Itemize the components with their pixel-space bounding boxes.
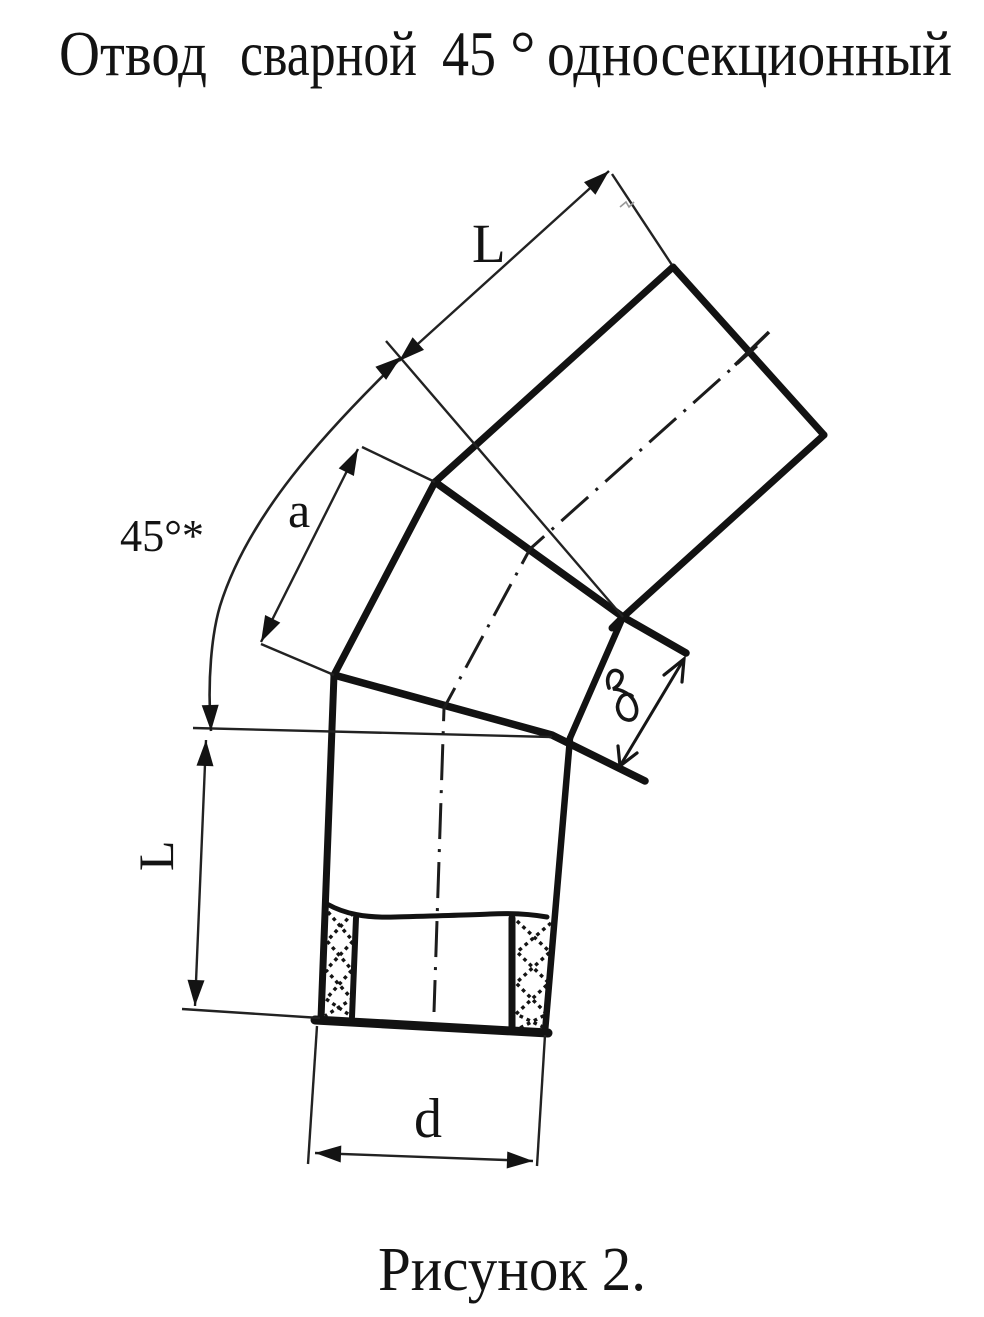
svg-text:L: L [472, 213, 506, 274]
svg-text:45°*: 45°* [120, 510, 204, 561]
svg-text:L: L [128, 840, 184, 871]
svg-text:°: ° [510, 18, 536, 89]
svg-text:односекционный: односекционный [547, 18, 952, 89]
svg-text:сварной: сварной [240, 18, 417, 89]
svg-text:d: d [414, 1088, 442, 1150]
svg-text:45: 45 [442, 18, 496, 89]
svg-text:Отвод: Отвод [59, 18, 207, 89]
svg-text:Рисунок 2.: Рисунок 2. [378, 1236, 646, 1304]
svg-text:a: a [288, 482, 310, 538]
